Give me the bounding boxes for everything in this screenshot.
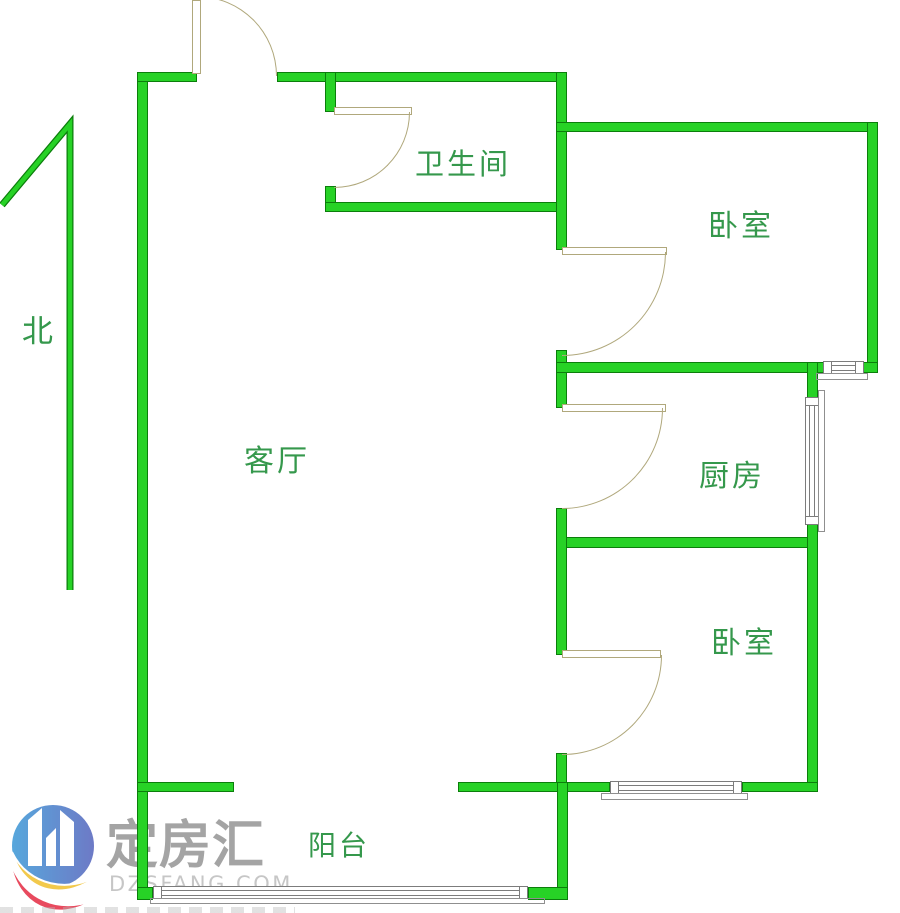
wall-segment <box>862 362 878 373</box>
wall-segment <box>807 362 818 400</box>
room-label-bedroom-south: 卧室 <box>711 618 900 656</box>
room-label-balcony: 阳台 <box>308 824 508 860</box>
wall-segment <box>867 122 878 372</box>
wall-segment <box>325 72 336 112</box>
window-sill <box>816 373 868 380</box>
north-label: 北 <box>22 306 53 351</box>
room-label-bedroom-north: 卧室 <box>708 201 900 239</box>
wall-segment <box>137 72 148 900</box>
wall-segment <box>277 72 567 82</box>
window-glass <box>832 365 855 371</box>
door-swing-arc <box>334 112 410 188</box>
door-swing-arc <box>562 252 666 356</box>
window-end-cap <box>805 397 819 406</box>
window-sill <box>601 793 748 800</box>
window-end-cap <box>805 516 819 525</box>
door-swing-arc <box>562 655 662 755</box>
window-glass <box>162 890 519 896</box>
wall-segment <box>137 782 234 792</box>
wall-segment <box>742 782 818 792</box>
room-label-living-room: 客厅 <box>244 436 444 474</box>
door-swing-arc <box>197 0 277 76</box>
wall-segment <box>556 350 567 408</box>
wall-segment <box>137 72 197 82</box>
wall-segment <box>557 782 568 900</box>
window-sill <box>150 898 545 904</box>
window-glass <box>619 785 733 791</box>
wall-segment <box>807 522 818 792</box>
room-label-bathroom: 卫生间 <box>415 141 615 178</box>
floorplan-drawing: 北 卫生间卧室厨房卧室客厅阳台 <box>0 0 900 913</box>
wall-segment <box>458 782 610 792</box>
door-swing-arc <box>562 408 663 509</box>
wall-segment <box>556 508 567 655</box>
floorplan: 定房汇 DZSFANG.COM 北 卫生间卧室厨房卧室客厅阳台 <box>0 0 900 913</box>
wall-segment <box>556 537 818 548</box>
wall-segment <box>325 202 560 212</box>
room-label-kitchen: 厨房 <box>699 451 899 489</box>
wall-segment <box>556 122 878 132</box>
wall-segment <box>556 362 825 373</box>
north-arrow-icon <box>0 0 90 600</box>
